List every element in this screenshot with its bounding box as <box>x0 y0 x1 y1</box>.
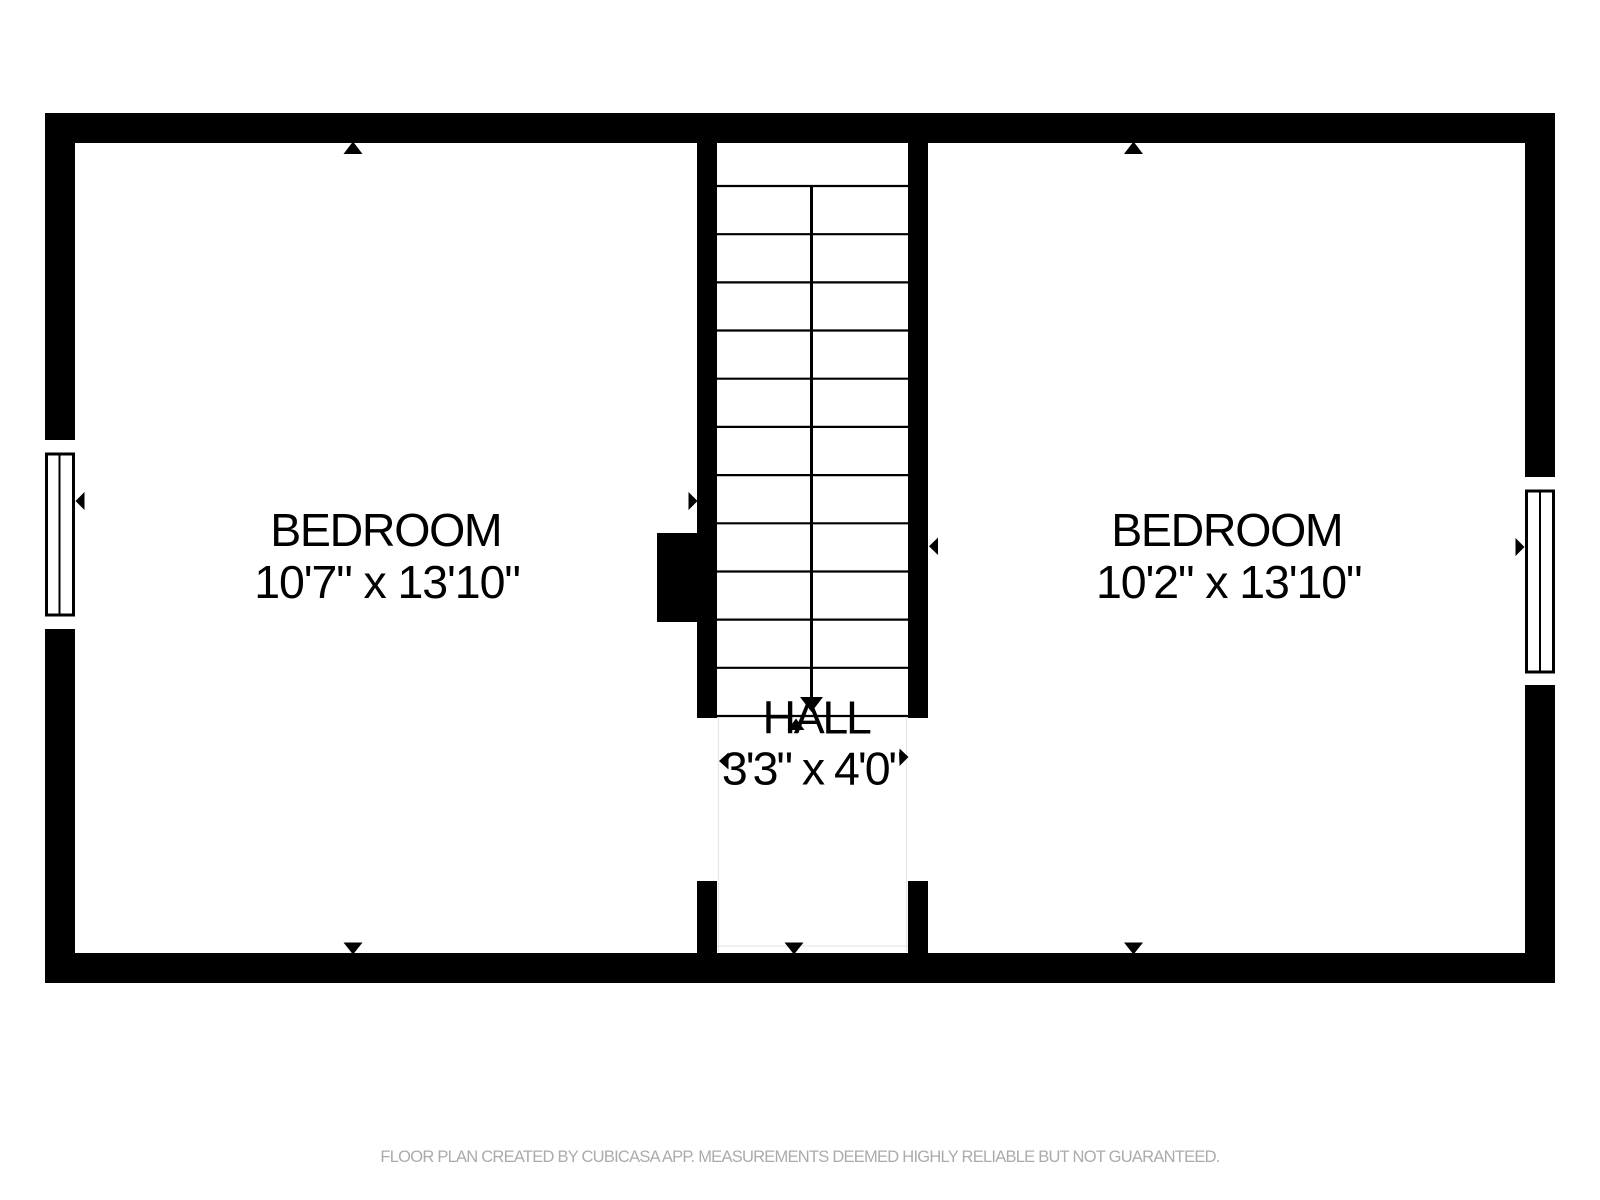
svg-text:HALL: HALL <box>762 691 871 743</box>
svg-text:BEDROOM: BEDROOM <box>1111 504 1342 556</box>
svg-text:FLOOR PLAN CREATED BY CUBICASA: FLOOR PLAN CREATED BY CUBICASA APP. MEAS… <box>380 1148 1219 1166</box>
svg-text:3'3" x 4'0": 3'3" x 4'0" <box>722 743 904 795</box>
svg-text:BEDROOM: BEDROOM <box>270 504 501 556</box>
svg-text:10'2" x 13'10": 10'2" x 13'10" <box>1096 556 1362 608</box>
svg-text:10'7" x 13'10": 10'7" x 13'10" <box>254 556 520 608</box>
